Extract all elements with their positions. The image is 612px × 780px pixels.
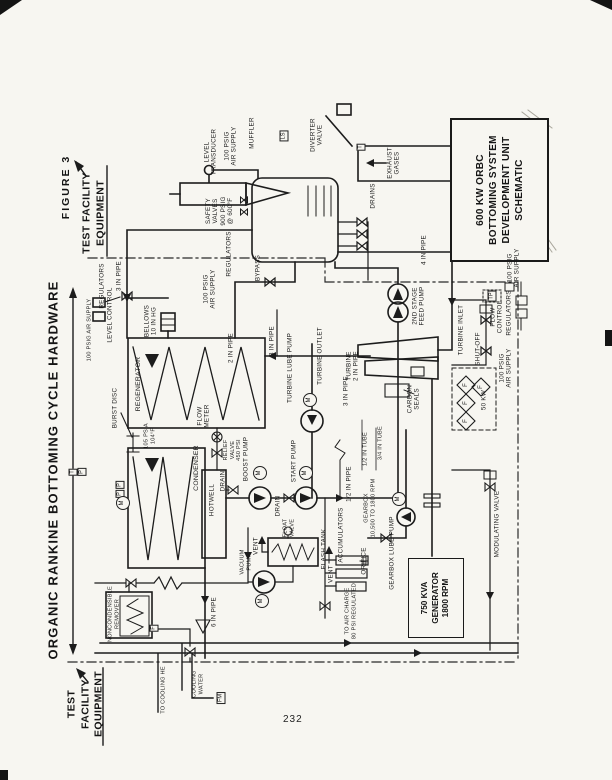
tag-f: F	[150, 624, 159, 631]
label-exhaust-gases: EXHAUST GASES	[387, 147, 402, 179]
title-line-1: 600 KW ORBC	[474, 124, 487, 256]
label-bypass: BYPASS	[254, 255, 261, 281]
label-turbine-lube-pump: TURBINE LUBE PUMP	[286, 333, 293, 403]
generator-box: 750 KVA GENERATOR 1800 RPM	[408, 558, 464, 638]
label-accumulators: ACCUMULATORS	[337, 507, 344, 562]
label-regulators-level: REGULATORS	[98, 263, 105, 308]
page-number: 232	[283, 714, 303, 725]
label-air-supply-level: 100 PSIG AIR SUPPLY	[87, 299, 94, 362]
tag-m: M	[303, 393, 317, 407]
label-drains: DRAINS	[369, 183, 376, 208]
label-level-control: LEVEL CONTROL	[106, 287, 113, 342]
tag-f: F	[463, 401, 469, 405]
title-line-2: BOTTOMING SYSTEM	[487, 124, 500, 256]
label-pipe-4in: 4 IN PIPE	[420, 235, 427, 265]
label-air-supply-right: 100 PSIG AIR SUPPLY	[507, 248, 522, 287]
tag-f: F	[478, 385, 484, 389]
tag-ls: LS	[280, 131, 289, 142]
tag-tp: TP	[488, 290, 497, 301]
label-air-charge: TO AIR CHARGE 80 PSI REGULATED	[344, 583, 357, 639]
label-orifice: ORIFICE	[360, 547, 367, 574]
label-regulators-boiler: REGULATORS	[225, 231, 232, 276]
label-diverter-valve: DIVERTER VALVE	[310, 118, 325, 152]
generator-line-1: 750 KVA	[420, 561, 431, 635]
label-pipe-half-in: 1/2 IN PIPE	[345, 466, 352, 502]
tag-t: T	[357, 143, 366, 150]
schematic-drawing	[0, 0, 612, 780]
label-to-cooling: TO COOLING HE	[161, 666, 168, 714]
tag-t: T	[69, 468, 78, 475]
label-boost-pump: BOOST PUMP	[242, 437, 249, 481]
label-vent-accum: VENT	[327, 565, 334, 583]
filter-bank	[452, 368, 496, 430]
label-vacuum-pump: VACUUM PUMP	[239, 549, 252, 574]
label-noncondensible: NONCONDENSIBLE REMOVER	[107, 586, 120, 642]
label-gearbox: GEARBOX 10,500 TO 1800 RPM	[363, 479, 376, 538]
label-gearbox-lube-pump: GEARBOX LUBE PUMP	[388, 516, 395, 590]
label-regulators-turbine: REGULATORS	[505, 290, 512, 335]
label-feed-pump: 2ND STAGE FEED PUMP	[412, 287, 427, 326]
label-start-pump: START PUMP	[290, 440, 297, 482]
label-pipe-2in: 2 IN PIPE	[227, 333, 234, 363]
label-air-supply-transducer: 100 PSIG AIR SUPPLY	[224, 126, 239, 165]
label-vent-flash: VENT	[252, 537, 259, 555]
title-line-3: DEVELOPMENT UNIT	[500, 124, 513, 256]
label-turbine-inlet: TURBINE INLET	[457, 305, 464, 355]
label-regenerator: REGENERATOR	[135, 357, 143, 412]
tag-m: M	[255, 594, 269, 608]
label-level-transducer: LEVEL TRANSDUCER	[204, 129, 219, 175]
label-burst-disc: BURST DISC	[111, 388, 118, 429]
label-muffler: MUFFLER	[248, 117, 255, 149]
label-bellows: BELLOWS 10 IN HG	[144, 305, 159, 337]
scanned-page: FIGURE 3 ORGANIC RANKINE BOTTOMING CYCLE…	[0, 0, 612, 780]
tag-fm: FM	[217, 692, 226, 704]
label-tube-half-in: 1/2 IN TUBE	[363, 432, 370, 466]
label-safety-valves: SAFETY VALVES 900 PSIG @ 600°F	[205, 196, 235, 225]
label-heater-50kw: 50 KW	[480, 390, 487, 410]
tag-m: M	[299, 466, 313, 480]
label-tube-34-in: 3/4 IN TUBE	[378, 426, 385, 460]
label-relief-valve: RELIEF VALVE 450 PSI	[223, 439, 243, 461]
label-cond-conditions: 105 PSIA 104°F	[143, 423, 156, 449]
label-turbine-outlet: TURBINE OUTLET	[316, 327, 323, 385]
tag-f: F	[463, 419, 469, 423]
valves	[122, 218, 491, 355]
schematic-title-block: 600 KW ORBC BOTTOMING SYSTEM DEVELOPMENT…	[450, 118, 549, 262]
label-float-valve: FLOAT VALVE	[282, 519, 295, 538]
title-line-4: SCHEMATIC	[513, 124, 526, 256]
label-pipe-3in-turb: 3 IN PIPE	[342, 376, 349, 406]
label-air-supply-boiler: 100 PSIG AIR SUPPLY	[203, 269, 218, 308]
tag-m: M	[253, 466, 267, 480]
test-facility-equipment-bottom: TEST FACILITY EQUIPMENT	[66, 671, 107, 737]
label-condenser: CONDENSER	[193, 445, 201, 491]
label-pipe-3in-left: 3 IN PIPE	[115, 261, 122, 291]
label-modulating-valve: MODULATING VALVE	[493, 491, 500, 558]
generator-line-3: 1800 RPM	[441, 561, 452, 635]
figure-label: FIGURE 3	[60, 155, 72, 219]
label-carbon-seals: CARBON SEALS	[407, 385, 422, 413]
label-hotwell: HOTWELL	[208, 484, 215, 516]
page-title: ORGANIC RANKINE BOTTOMING CYCLE HARDWARE	[46, 281, 61, 660]
tag-m: M	[116, 496, 130, 510]
label-drain-1: DRAIN	[219, 471, 226, 492]
cooling-headers	[95, 639, 518, 712]
test-facility-equipment-top: TEST FACILITY EQUIPMENT	[80, 172, 107, 254]
tag-f: F	[463, 383, 469, 387]
condenser-hotwell	[128, 428, 238, 568]
label-pipe-6in: 6 IN PIPE	[210, 597, 217, 627]
label-drain-2: DRAIN	[274, 496, 281, 517]
label-flash-tank: FLASH TANK	[320, 529, 327, 570]
label-flow-control: FLOW CONTROL	[490, 301, 505, 334]
tag-m: M	[392, 492, 406, 506]
label-pipe-3in-lube: 3 IN PIPE	[268, 326, 275, 356]
label-air-supply-turbine: 100 PSIG AIR SUPPLY	[499, 348, 514, 387]
scan-edge-marks	[0, 0, 612, 780]
label-flow-meter: FLOW METER	[197, 404, 212, 427]
label-shut-off: SHUT-OFF	[474, 332, 481, 365]
label-cooling-water: COOLING WATER	[191, 670, 204, 698]
tag-p: P	[116, 481, 125, 489]
six-inch-line	[196, 568, 210, 658]
tag-p: P	[78, 468, 87, 476]
generator-line-2: GENERATOR	[431, 561, 442, 635]
